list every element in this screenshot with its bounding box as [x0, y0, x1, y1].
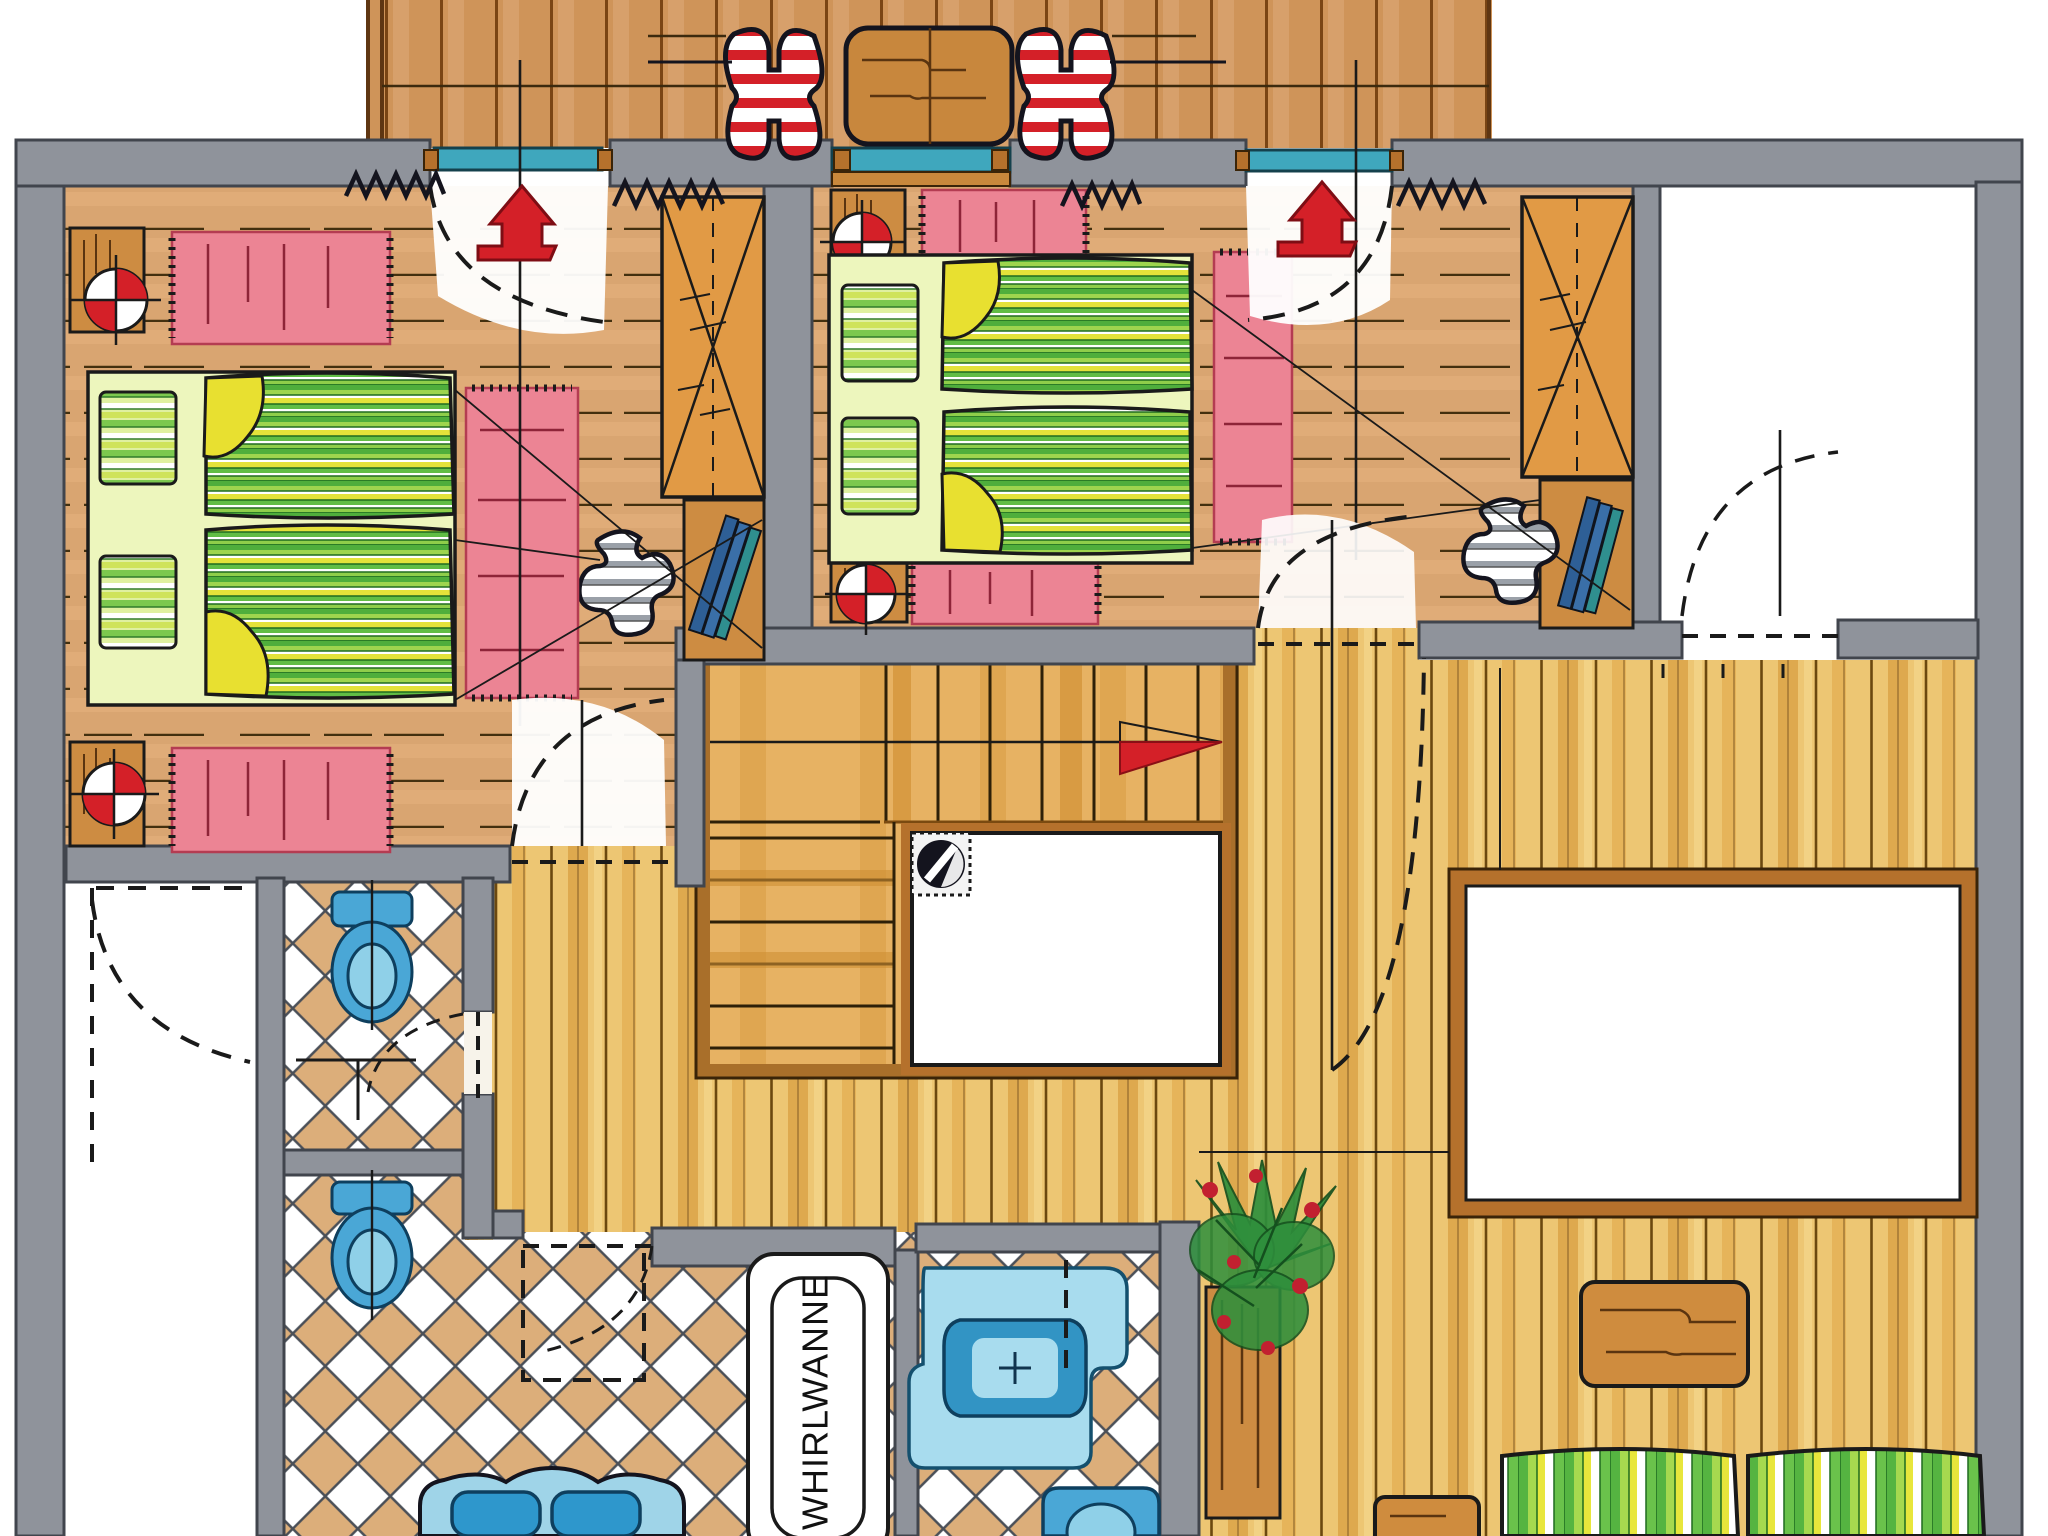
svg-text:WHIRLWANNE: WHIRLWANNE [795, 1274, 836, 1530]
